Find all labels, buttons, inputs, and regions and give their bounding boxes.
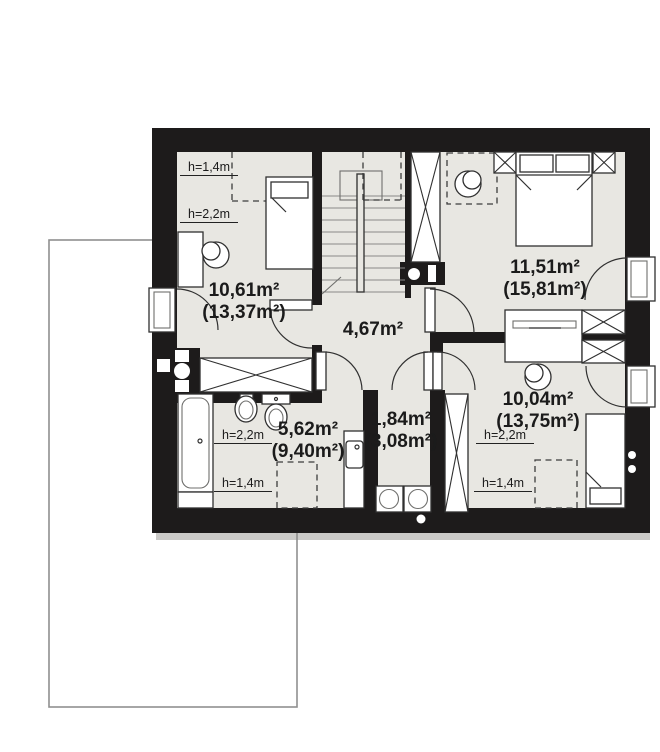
wardrobe [582, 310, 625, 334]
room-label-laundry: 1,84m² (3,08m²) [365, 409, 438, 453]
stair-handrail [357, 174, 364, 292]
dryer [404, 486, 431, 512]
double-bed [516, 152, 592, 246]
wall-vent-dot [417, 515, 426, 524]
wall-vent-dot [628, 451, 636, 459]
wardrobe-stair-side [411, 152, 440, 262]
room-label-bedroom-bottom-right: 10,04m² (13,75m²) [496, 389, 579, 433]
desk [178, 232, 203, 287]
height-mark: h=2,2m [476, 428, 534, 444]
height-mark: h=1,4m [474, 476, 532, 492]
built-in-wardrobe [505, 310, 582, 362]
room-label-bathroom: 5,62m² (9,40m²) [272, 419, 345, 463]
wardrobe [582, 340, 625, 363]
pillow [590, 488, 621, 504]
building-shadow [156, 533, 650, 540]
nightstand [593, 152, 615, 173]
height-mark: h=2,2m [214, 428, 272, 444]
washbasin [344, 431, 364, 508]
room-label-bedroom-top-left: 10,61m² (13,37m²) [202, 280, 285, 324]
wardrobe [200, 358, 312, 392]
pillow [271, 182, 308, 198]
height-mark: h=1,4m [180, 160, 238, 176]
bathtub [178, 394, 213, 492]
chimney-block-center [400, 262, 445, 285]
chimney-block-left [152, 348, 200, 398]
room-label-bedroom-top-right: 11,51m² (15,81m²) [503, 257, 586, 301]
nightstand [494, 152, 516, 173]
washing-machine [376, 486, 403, 512]
pillow [520, 155, 553, 172]
room-label-hall: 4,67m² [343, 319, 403, 341]
wardrobe [445, 394, 468, 512]
floor-plan-drawing [0, 0, 660, 752]
single-bed [586, 414, 625, 508]
pillow [556, 155, 589, 172]
height-mark: h=2,2m [180, 207, 238, 223]
wall-vent-dot [628, 465, 636, 473]
floor-plan-canvas: 10,61m² (13,37m²) 11,51m² (15,81m²) 4,67… [0, 0, 660, 752]
height-mark: h=1,4m [214, 476, 272, 492]
bath-cabinet [178, 492, 213, 508]
